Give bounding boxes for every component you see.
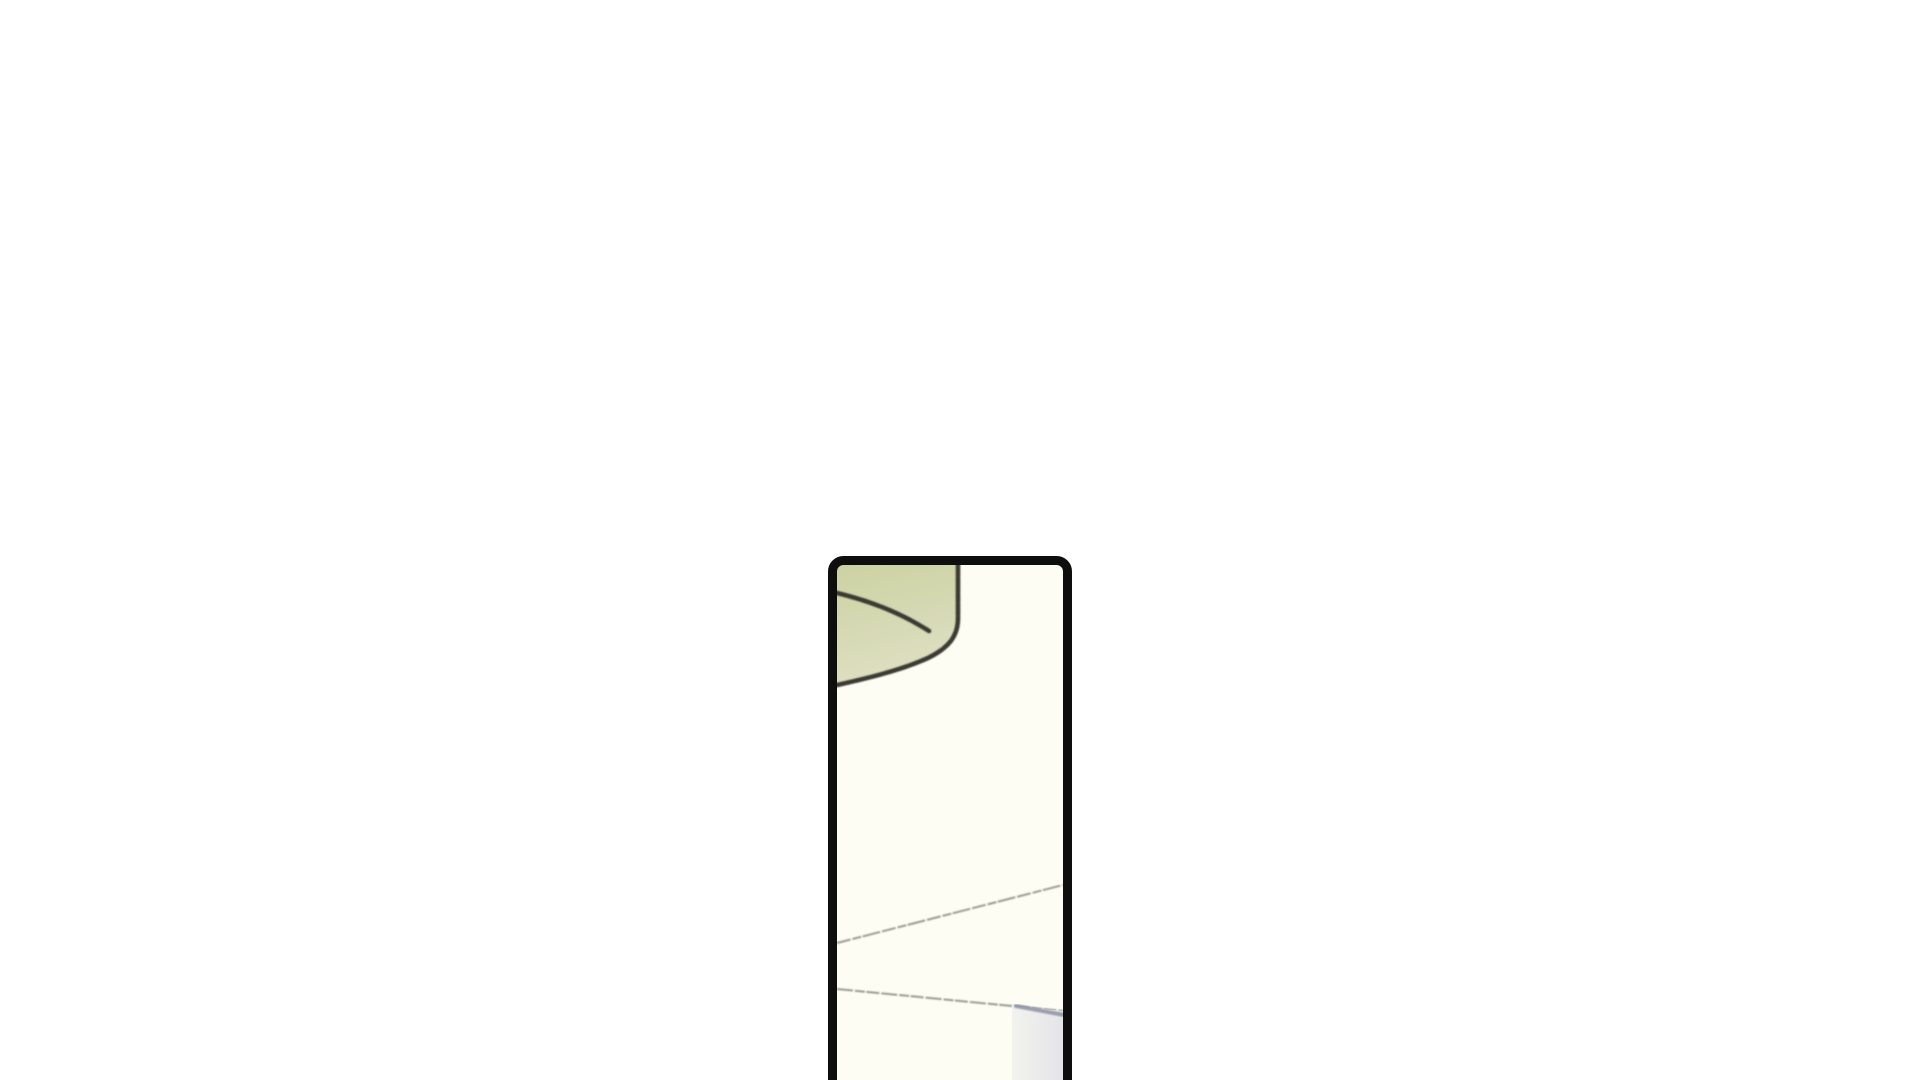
illustration-svg bbox=[828, 556, 1072, 1080]
page-canvas bbox=[0, 0, 1920, 1080]
gray-object-corner bbox=[1012, 1006, 1063, 1080]
cropped-illustration bbox=[828, 556, 1072, 1080]
